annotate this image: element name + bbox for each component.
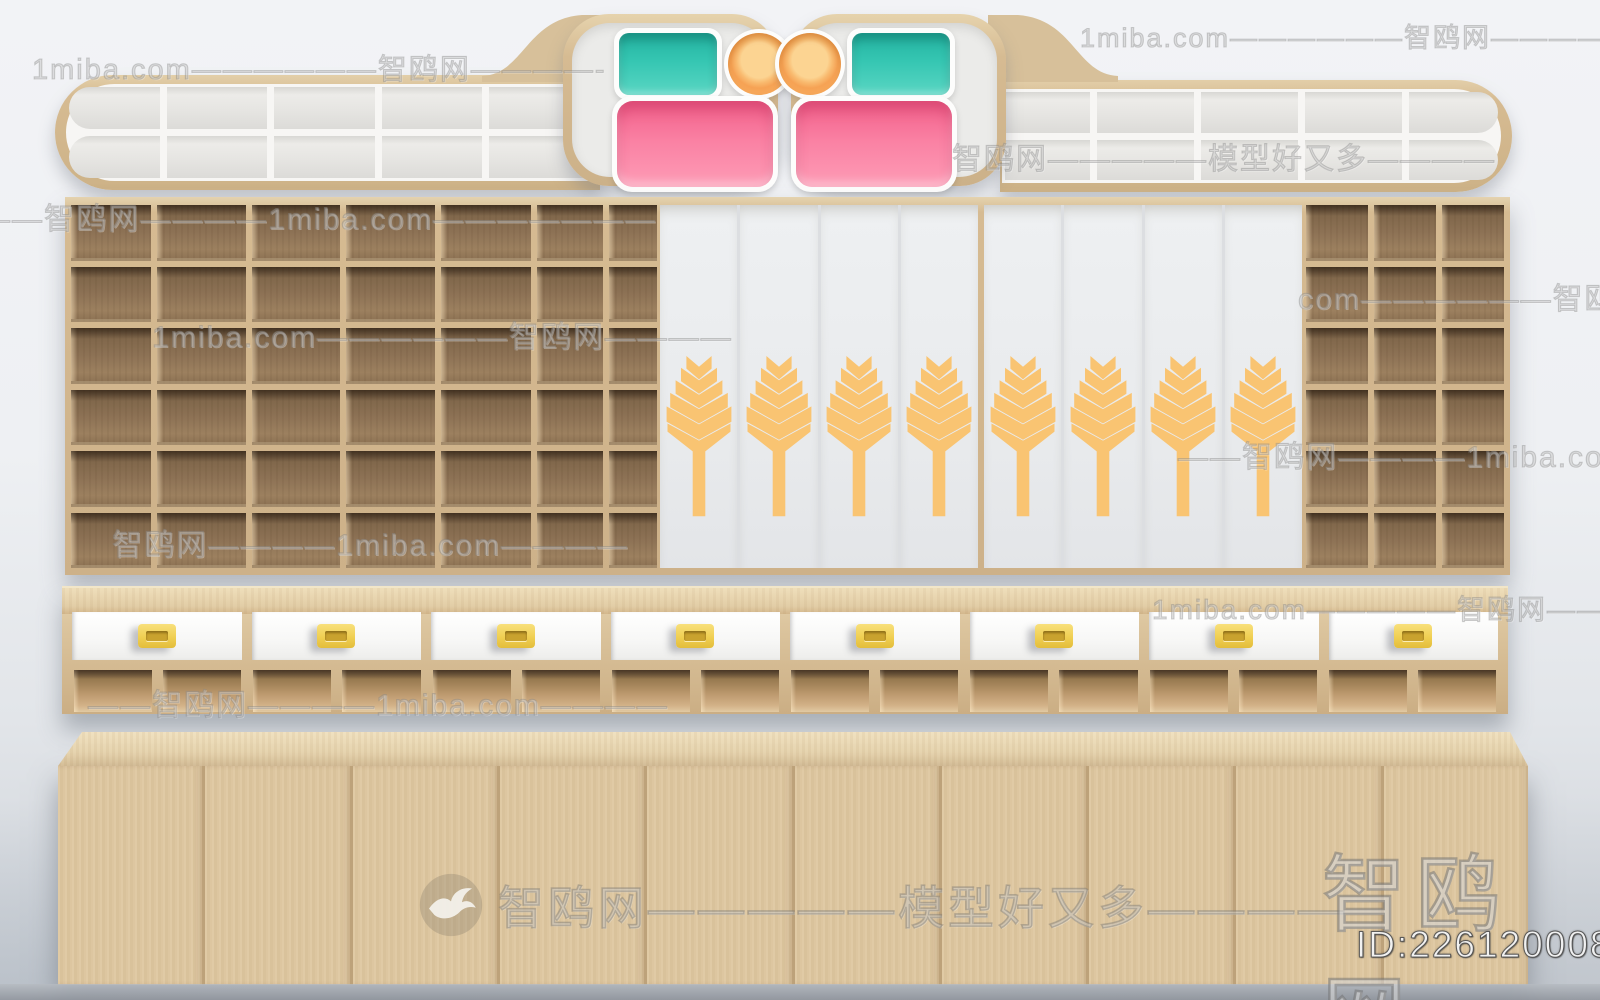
tray-set xyxy=(572,23,769,177)
cubby-bay xyxy=(1150,670,1317,712)
drawer xyxy=(611,612,781,660)
wood-cubby-cell xyxy=(537,328,603,384)
wood-cubby-cell xyxy=(252,513,341,569)
top-shelf-cubby xyxy=(1097,140,1194,181)
open-cubby-cell xyxy=(1239,670,1317,712)
wood-cubby-cell xyxy=(157,451,246,507)
wood-cubby-cell xyxy=(252,451,341,507)
wood-cubby-cell xyxy=(157,390,246,446)
cabinet-door xyxy=(647,766,791,985)
top-shelf-cubby xyxy=(1201,140,1298,181)
cubby-bay xyxy=(791,670,958,712)
drawer xyxy=(1329,612,1499,660)
teal-tray xyxy=(852,33,950,95)
wood-cubby-cell xyxy=(537,205,603,261)
wood-cubby-cell xyxy=(609,267,657,323)
wood-cubby-cell xyxy=(441,451,531,507)
wood-cubby-cell xyxy=(1374,328,1436,384)
wood-cubby-cell xyxy=(1306,205,1368,261)
wheat-door-panel-left xyxy=(660,205,978,568)
drawer xyxy=(1149,612,1319,660)
wood-cubby-cell xyxy=(537,390,603,446)
wood-cubby-cell xyxy=(441,328,531,384)
drawer-shelf-unit xyxy=(62,586,1508,714)
top-shelf-cubby xyxy=(1201,92,1298,133)
wood-cubby-cell xyxy=(609,513,657,569)
wood-cubby-cell xyxy=(346,267,435,323)
wood-cubby-cell xyxy=(1374,205,1436,261)
cubby-wall-unit xyxy=(65,197,1510,575)
top-shelf-cubby xyxy=(1097,92,1194,133)
drawer xyxy=(431,612,601,660)
top-shelf-cubby xyxy=(1005,92,1090,133)
wood-cubby-cell xyxy=(1306,267,1368,323)
top-shelf-cubby xyxy=(382,87,483,129)
floor-shadow xyxy=(0,984,1600,1000)
open-cubby-cell xyxy=(701,670,779,712)
door-strip xyxy=(660,205,737,568)
wheat-icon xyxy=(1147,351,1219,523)
open-cubby-cell xyxy=(433,670,511,712)
tray-platform-left xyxy=(563,14,778,186)
wood-cubby-cell xyxy=(1374,390,1436,446)
wood-cubby-cell xyxy=(157,328,246,384)
orange-plate xyxy=(779,33,841,95)
door-strip xyxy=(901,205,978,568)
base-cabinet-doors xyxy=(58,766,1528,985)
open-cubby-row xyxy=(62,670,1508,712)
top-shelf-cubby xyxy=(1305,140,1402,181)
wood-cubby-cell xyxy=(1442,267,1504,323)
top-shelf-cubby xyxy=(167,87,268,129)
open-cubby-cell xyxy=(1059,670,1137,712)
wood-cubby-cell xyxy=(609,451,657,507)
drawer-handle xyxy=(317,624,355,648)
door-strip xyxy=(1225,205,1302,568)
wood-cubby-cell xyxy=(71,328,151,384)
watermark-text: 1miba.com——————智鸥网————— xyxy=(1080,16,1600,55)
wheat-icon xyxy=(1067,351,1139,523)
cubby-bay xyxy=(253,670,420,712)
tray-set xyxy=(800,23,997,177)
top-shelf-right-cubbies xyxy=(1002,89,1501,183)
wheat-icon xyxy=(987,351,1059,523)
drawer-handle xyxy=(856,624,894,648)
open-cubby-cell xyxy=(791,670,869,712)
open-cubby-cell xyxy=(163,670,241,712)
wood-cubby-cell xyxy=(71,513,151,569)
wood-cubby-cell xyxy=(609,328,657,384)
open-cubby-cell xyxy=(342,670,420,712)
open-cubby-cell xyxy=(1418,670,1496,712)
wood-cubby-cell xyxy=(1306,328,1368,384)
cubby-bay xyxy=(612,670,779,712)
top-shelf-left-bar xyxy=(55,75,600,190)
wood-cubby-cell xyxy=(1442,513,1504,569)
cabinet-door xyxy=(205,766,349,985)
wood-cubby-cell xyxy=(1374,451,1436,507)
wheat-door-panel-right xyxy=(984,205,1302,568)
open-cubby-cell xyxy=(880,670,958,712)
drawer xyxy=(72,612,242,660)
cabinet-door xyxy=(353,766,497,985)
top-shelf-cubby xyxy=(167,136,268,178)
wood-cubby-cell xyxy=(252,267,341,323)
wood-cubby-cell xyxy=(252,390,341,446)
wood-cubby-cell xyxy=(157,267,246,323)
door-strip xyxy=(740,205,817,568)
top-shelf-left-cubbies xyxy=(66,84,598,181)
drawer-handle xyxy=(1215,624,1253,648)
wood-cubby-cell xyxy=(537,267,603,323)
wood-cubby-cell xyxy=(1374,513,1436,569)
wheat-icon xyxy=(903,351,975,523)
wood-cubby-cell xyxy=(346,513,435,569)
drawer-handle xyxy=(1035,624,1073,648)
wood-cubby-cell xyxy=(609,205,657,261)
wood-cubby-cell xyxy=(252,328,341,384)
door-strip xyxy=(821,205,898,568)
cubby-bay xyxy=(970,670,1137,712)
top-shelf-cubby xyxy=(69,87,160,129)
open-cubby-cell xyxy=(970,670,1048,712)
teal-tray xyxy=(619,33,717,95)
open-cubby-cell xyxy=(612,670,690,712)
open-cubby-cell xyxy=(1329,670,1407,712)
door-strip xyxy=(1064,205,1141,568)
wood-cubby-cell xyxy=(1306,451,1368,507)
wood-cubby-cell xyxy=(441,267,531,323)
tray-platform-right-inner xyxy=(800,23,997,177)
wood-cubby-cell xyxy=(157,205,246,261)
wood-cubby-cell xyxy=(71,267,151,323)
wood-cubby-cell xyxy=(1306,390,1368,446)
wood-cubby-cell xyxy=(346,451,435,507)
cabinet-door xyxy=(1384,766,1528,985)
drawer xyxy=(970,612,1140,660)
wheat-icon xyxy=(1227,351,1299,523)
wheat-icon xyxy=(743,351,815,523)
drawer-unit-counter-top xyxy=(62,586,1508,614)
wood-cubby-cell xyxy=(346,328,435,384)
wood-cubby-cell xyxy=(71,451,151,507)
wood-cubby-cell xyxy=(1442,205,1504,261)
cabinet-door xyxy=(1236,766,1380,985)
wood-cubby-cell xyxy=(1374,267,1436,323)
wood-cubby-cell xyxy=(441,205,531,261)
drawer xyxy=(790,612,960,660)
wood-cubby-cell xyxy=(71,205,151,261)
tray-platform-left-inner xyxy=(572,23,769,177)
drawer-handle xyxy=(1394,624,1432,648)
drawer-row xyxy=(62,612,1508,660)
open-cubby-cell xyxy=(522,670,600,712)
wood-cubby-cell xyxy=(537,451,603,507)
wood-cubby-cell xyxy=(1442,328,1504,384)
wood-cubby-cell xyxy=(71,390,151,446)
wood-cubby-cell xyxy=(1306,513,1368,569)
cubby-bay xyxy=(433,670,600,712)
cabinet-door xyxy=(58,766,202,985)
wood-cubby-cell xyxy=(346,390,435,446)
base-cabinet-top xyxy=(58,732,1528,766)
drawer xyxy=(252,612,422,660)
cubby-bay xyxy=(1329,670,1496,712)
wood-cubby-cell xyxy=(1442,390,1504,446)
wood-cubby-cell xyxy=(157,513,246,569)
wood-cubby-cell xyxy=(441,390,531,446)
cabinet-door xyxy=(500,766,644,985)
open-cubby-cell xyxy=(253,670,331,712)
cabinet-door xyxy=(942,766,1086,985)
top-shelf-cubby xyxy=(1409,140,1498,181)
drawer-handle xyxy=(676,624,714,648)
product-render-scene: 智鸥网—————模型好又多———— 智鸥网 ID:226120008 1miba… xyxy=(0,0,1600,1000)
top-shelf-cubby xyxy=(69,136,160,178)
drawer-handle xyxy=(138,624,176,648)
wood-cubby-cell xyxy=(252,205,341,261)
door-strip xyxy=(984,205,1061,568)
top-shelf-cubby xyxy=(1409,92,1498,133)
top-shelf-cubby xyxy=(1305,92,1402,133)
open-cubby-cell xyxy=(74,670,152,712)
top-shelf-right-curve xyxy=(988,12,1118,82)
cabinet-door xyxy=(795,766,939,985)
cubby-bay xyxy=(74,670,241,712)
wood-cubby-cell xyxy=(1442,451,1504,507)
top-shelf-cubby xyxy=(274,87,375,129)
top-shelf-cubby xyxy=(274,136,375,178)
drawer-handle xyxy=(497,624,535,648)
top-shelf-cubby xyxy=(382,136,483,178)
door-strip xyxy=(1145,205,1222,568)
top-shelf-right-bar xyxy=(1000,80,1512,192)
wheat-icon xyxy=(823,351,895,523)
wood-cubby-grid-left xyxy=(71,205,657,568)
wheat-icon xyxy=(663,351,735,523)
wood-cubby-grid-right xyxy=(1306,205,1504,568)
wood-cubby-cell xyxy=(441,513,531,569)
wood-cubby-cell xyxy=(537,513,603,569)
open-cubby-cell xyxy=(1150,670,1228,712)
cabinet-door xyxy=(1089,766,1233,985)
pink-tray xyxy=(796,101,952,187)
tray-platform-right xyxy=(791,14,1006,186)
pink-tray xyxy=(617,101,773,187)
wood-cubby-cell xyxy=(609,390,657,446)
wood-cubby-cell xyxy=(346,205,435,261)
top-shelf-cubby xyxy=(1005,140,1090,181)
